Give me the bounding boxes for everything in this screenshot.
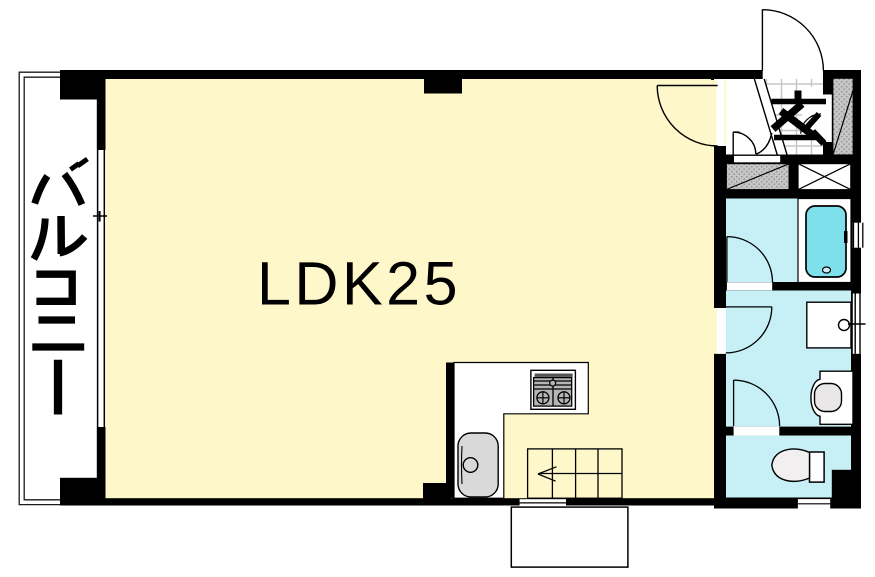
svg-text:LDK25: LDK25 [257,250,461,318]
